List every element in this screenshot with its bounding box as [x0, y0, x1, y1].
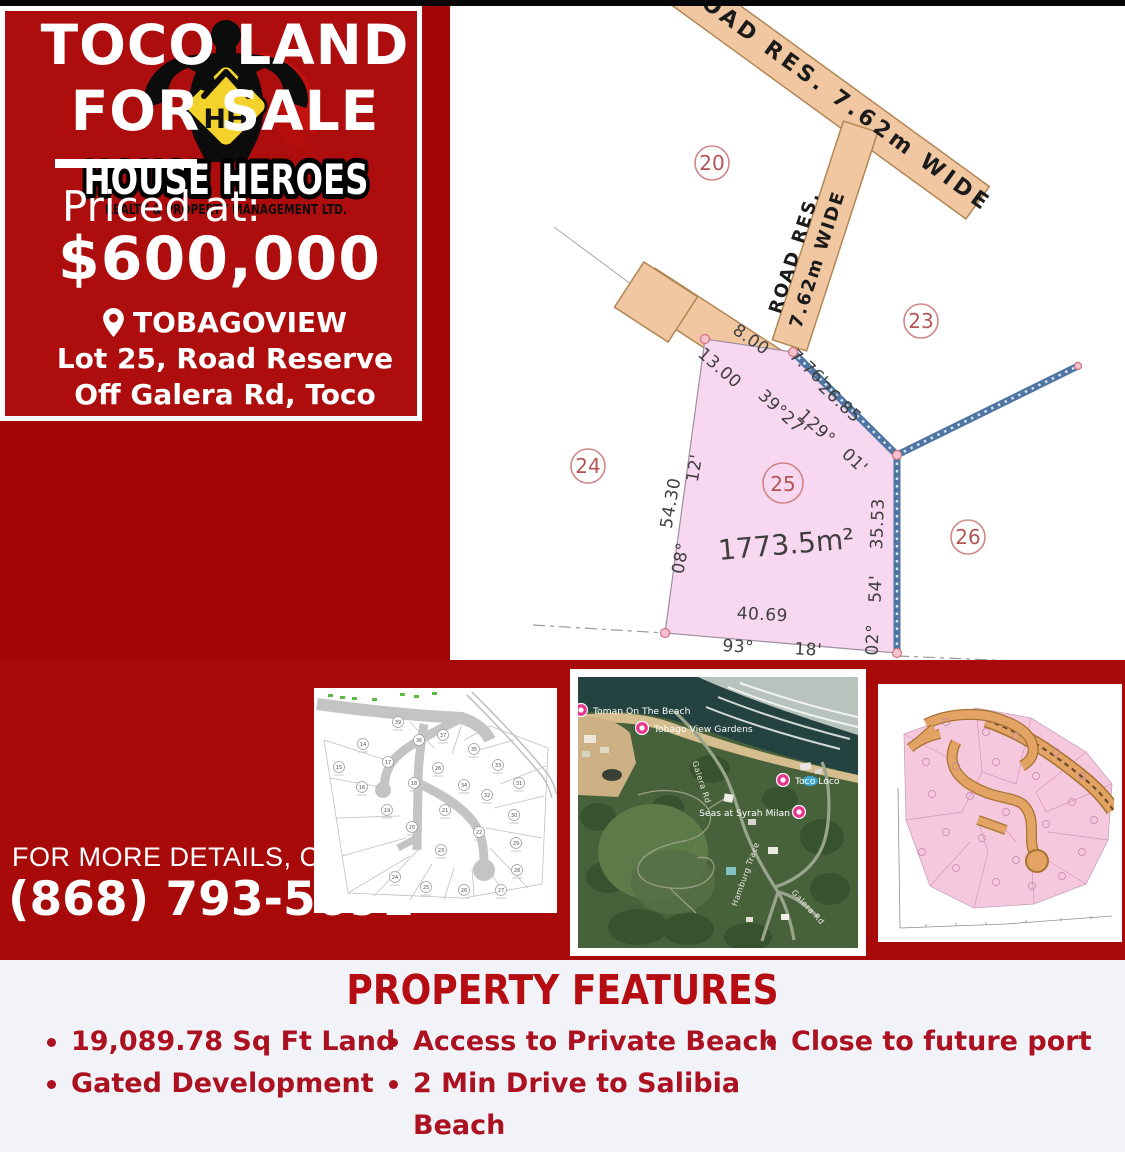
location-row: TOBAGOVIEW — [0, 306, 450, 339]
survey-measurement: 40.69 — [736, 604, 788, 627]
mini-lot-number: 21 — [442, 808, 448, 814]
survey-measurement: 35.53 — [867, 498, 889, 550]
feature-item-continuation: Beach — [388, 1110, 778, 1142]
mini-lot-area-mark — [512, 878, 522, 879]
map-pin-dot — [796, 809, 801, 814]
survey-lot-number: 23 — [908, 309, 933, 333]
satellite-map-image: Galera RdHamburg TraceGalera Rd Toman On… — [570, 669, 866, 956]
mini-lot-number: 14 — [360, 742, 366, 748]
survey-plan-panel: ROAD RES. 7.62m WIDE ROAD RES. 7.62m WID… — [450, 6, 1125, 660]
feature-item: Gated Development — [46, 1068, 395, 1100]
features-title: PROPERTY FEATURES — [68, 966, 1058, 1014]
mini-lot-number: 34 — [461, 783, 467, 789]
location-name: TOBAGOVIEW — [133, 306, 347, 339]
mini-lot-area-mark — [390, 885, 400, 886]
features-column-3: Close to future port — [766, 1026, 1091, 1068]
mini-lot-area-mark — [409, 791, 419, 792]
address-line1: Lot 25, Road Reserve — [0, 342, 450, 375]
mini-lot-area-mark — [474, 840, 484, 841]
survey-plan-drawing: ROAD RES. 7.62m WIDE ROAD RES. 7.62m WID… — [450, 6, 1125, 660]
mini-lot-number: 36 — [416, 738, 422, 744]
mini-lot-area-mark — [414, 748, 424, 749]
survey-measurement: 93° — [722, 636, 755, 658]
mini-lot-number: 28 — [514, 868, 520, 874]
cadastral-plan-image — [878, 684, 1122, 942]
mini-lot-area-mark — [383, 770, 393, 771]
mini-lot-area-mark — [433, 776, 443, 777]
mini-lot-number: 29 — [513, 841, 519, 847]
feature-item: Close to future port — [766, 1026, 1091, 1058]
meadow — [631, 850, 715, 914]
address-line2: Off Galera Rd, Toco — [0, 378, 450, 411]
middle-band: FOR MORE DETAILS, CALL: (868) 793-5691 — [0, 660, 1125, 960]
mini-lot-number: 17 — [385, 760, 391, 766]
mini-lot-area-mark — [393, 730, 403, 731]
culdesac-bulb — [473, 859, 495, 881]
feature-item: 19,089.78 Sq Ft Land — [46, 1026, 395, 1058]
mini-lot-number: 15 — [336, 765, 342, 771]
survey-lot-number: 25 — [770, 472, 795, 496]
survey-measurement: 02° — [862, 624, 883, 656]
mini-lot-number: 37 — [440, 733, 446, 739]
features-section: PROPERTY FEATURES 19,089.78 Sq Ft Land G… — [0, 960, 1125, 1129]
survey-measurement: 54' — [866, 575, 887, 603]
mini-lot-number: 20 — [409, 825, 415, 831]
mini-lot-number: 35 — [471, 747, 477, 753]
features-column-2: Access to Private Beach 2 Min Drive to S… — [388, 1026, 778, 1152]
cadastral-plan-drawing — [886, 692, 1114, 934]
mini-lot-number: 25 — [423, 885, 429, 891]
mini-lot-area-mark — [469, 757, 479, 758]
survey-lot-number: 26 — [955, 525, 980, 549]
map-pin-dot — [578, 707, 583, 712]
mini-lot-area-mark — [357, 795, 367, 796]
survey-lot-number: 24 — [575, 454, 600, 478]
mini-lot-area-mark — [514, 791, 524, 792]
mini-lot-area-mark — [358, 752, 368, 753]
mini-lot-number: 16 — [359, 785, 365, 791]
baseline-left — [533, 625, 665, 633]
left-red-panel: HH HOUSE HEROES REALTY & PROPERTY MANAGE… — [0, 6, 450, 660]
mini-lot-area-mark — [459, 898, 469, 899]
mini-lot-number: 31 — [516, 781, 522, 787]
price-value: $600,000 — [58, 224, 381, 294]
mini-lot-number: 32 — [484, 793, 490, 799]
map-pin-dot — [639, 725, 644, 730]
mini-lot-number: 39 — [395, 720, 401, 726]
mini-lot-number: 22 — [476, 830, 482, 836]
mini-lot-number: 26 — [435, 766, 441, 772]
mini-lot-number: 24 — [392, 875, 398, 881]
location-pin-icon — [103, 308, 124, 337]
mini-lot-area-mark — [440, 818, 450, 819]
mini-lot-area-mark — [382, 818, 392, 819]
mini-lot-number: 26 — [461, 888, 467, 894]
survey-measurement: 18' — [794, 639, 823, 660]
mini-lot-number: 18 — [411, 781, 417, 787]
features-column-1: 19,089.78 Sq Ft Land Gated Development — [46, 1026, 395, 1110]
mini-lot-number: 30 — [511, 813, 517, 819]
mini-lot-area-mark — [482, 803, 492, 804]
mini-lot-area-mark — [493, 773, 503, 774]
mini-lot-area-mark — [436, 858, 446, 859]
listing-title-line2: FOR SALE — [0, 84, 450, 139]
map-place-label: Tobago View Gardens — [653, 724, 753, 735]
map-place-label: Seas at Syrah Milan — [699, 808, 790, 819]
satellite-map-drawing: Galera RdHamburg TraceGalera Rd Toman On… — [578, 677, 858, 948]
mini-lot-number: 19 — [384, 808, 390, 814]
divider-bar — [55, 159, 197, 168]
mini-lot-area-mark — [459, 793, 469, 794]
mini-lot-area-mark — [421, 895, 431, 896]
mini-lot-area-mark — [334, 775, 344, 776]
survey-lot-number: 20 — [699, 151, 724, 175]
mini-lot-area-mark — [511, 851, 521, 852]
map-place-label: Toman On The Beach — [592, 706, 691, 717]
mini-lot-area-mark — [496, 898, 506, 899]
mini-lot-number: 23 — [438, 848, 444, 854]
mini-lot-area-mark — [407, 835, 417, 836]
mini-lot-number: 33 — [495, 763, 501, 769]
feature-item: Access to Private Beach — [388, 1026, 778, 1058]
feature-item: 2 Min Drive to Salibia — [388, 1068, 778, 1100]
listing-title-line1: TOCO LAND — [0, 18, 450, 73]
culdesac-bulb — [375, 782, 391, 798]
mini-lot-number: 27 — [498, 888, 504, 894]
map-place-label: Toco Loco — [794, 776, 840, 787]
mini-lot-area-mark — [438, 743, 448, 744]
map-pin-dot — [780, 777, 785, 782]
subdivision-plan-drawing: 3936373514172615333416183132192130202229… — [314, 688, 557, 913]
mini-lot-area-mark — [509, 823, 519, 824]
subdivision-plan-image: 3936373514172615333416183132192130202229… — [314, 688, 557, 913]
